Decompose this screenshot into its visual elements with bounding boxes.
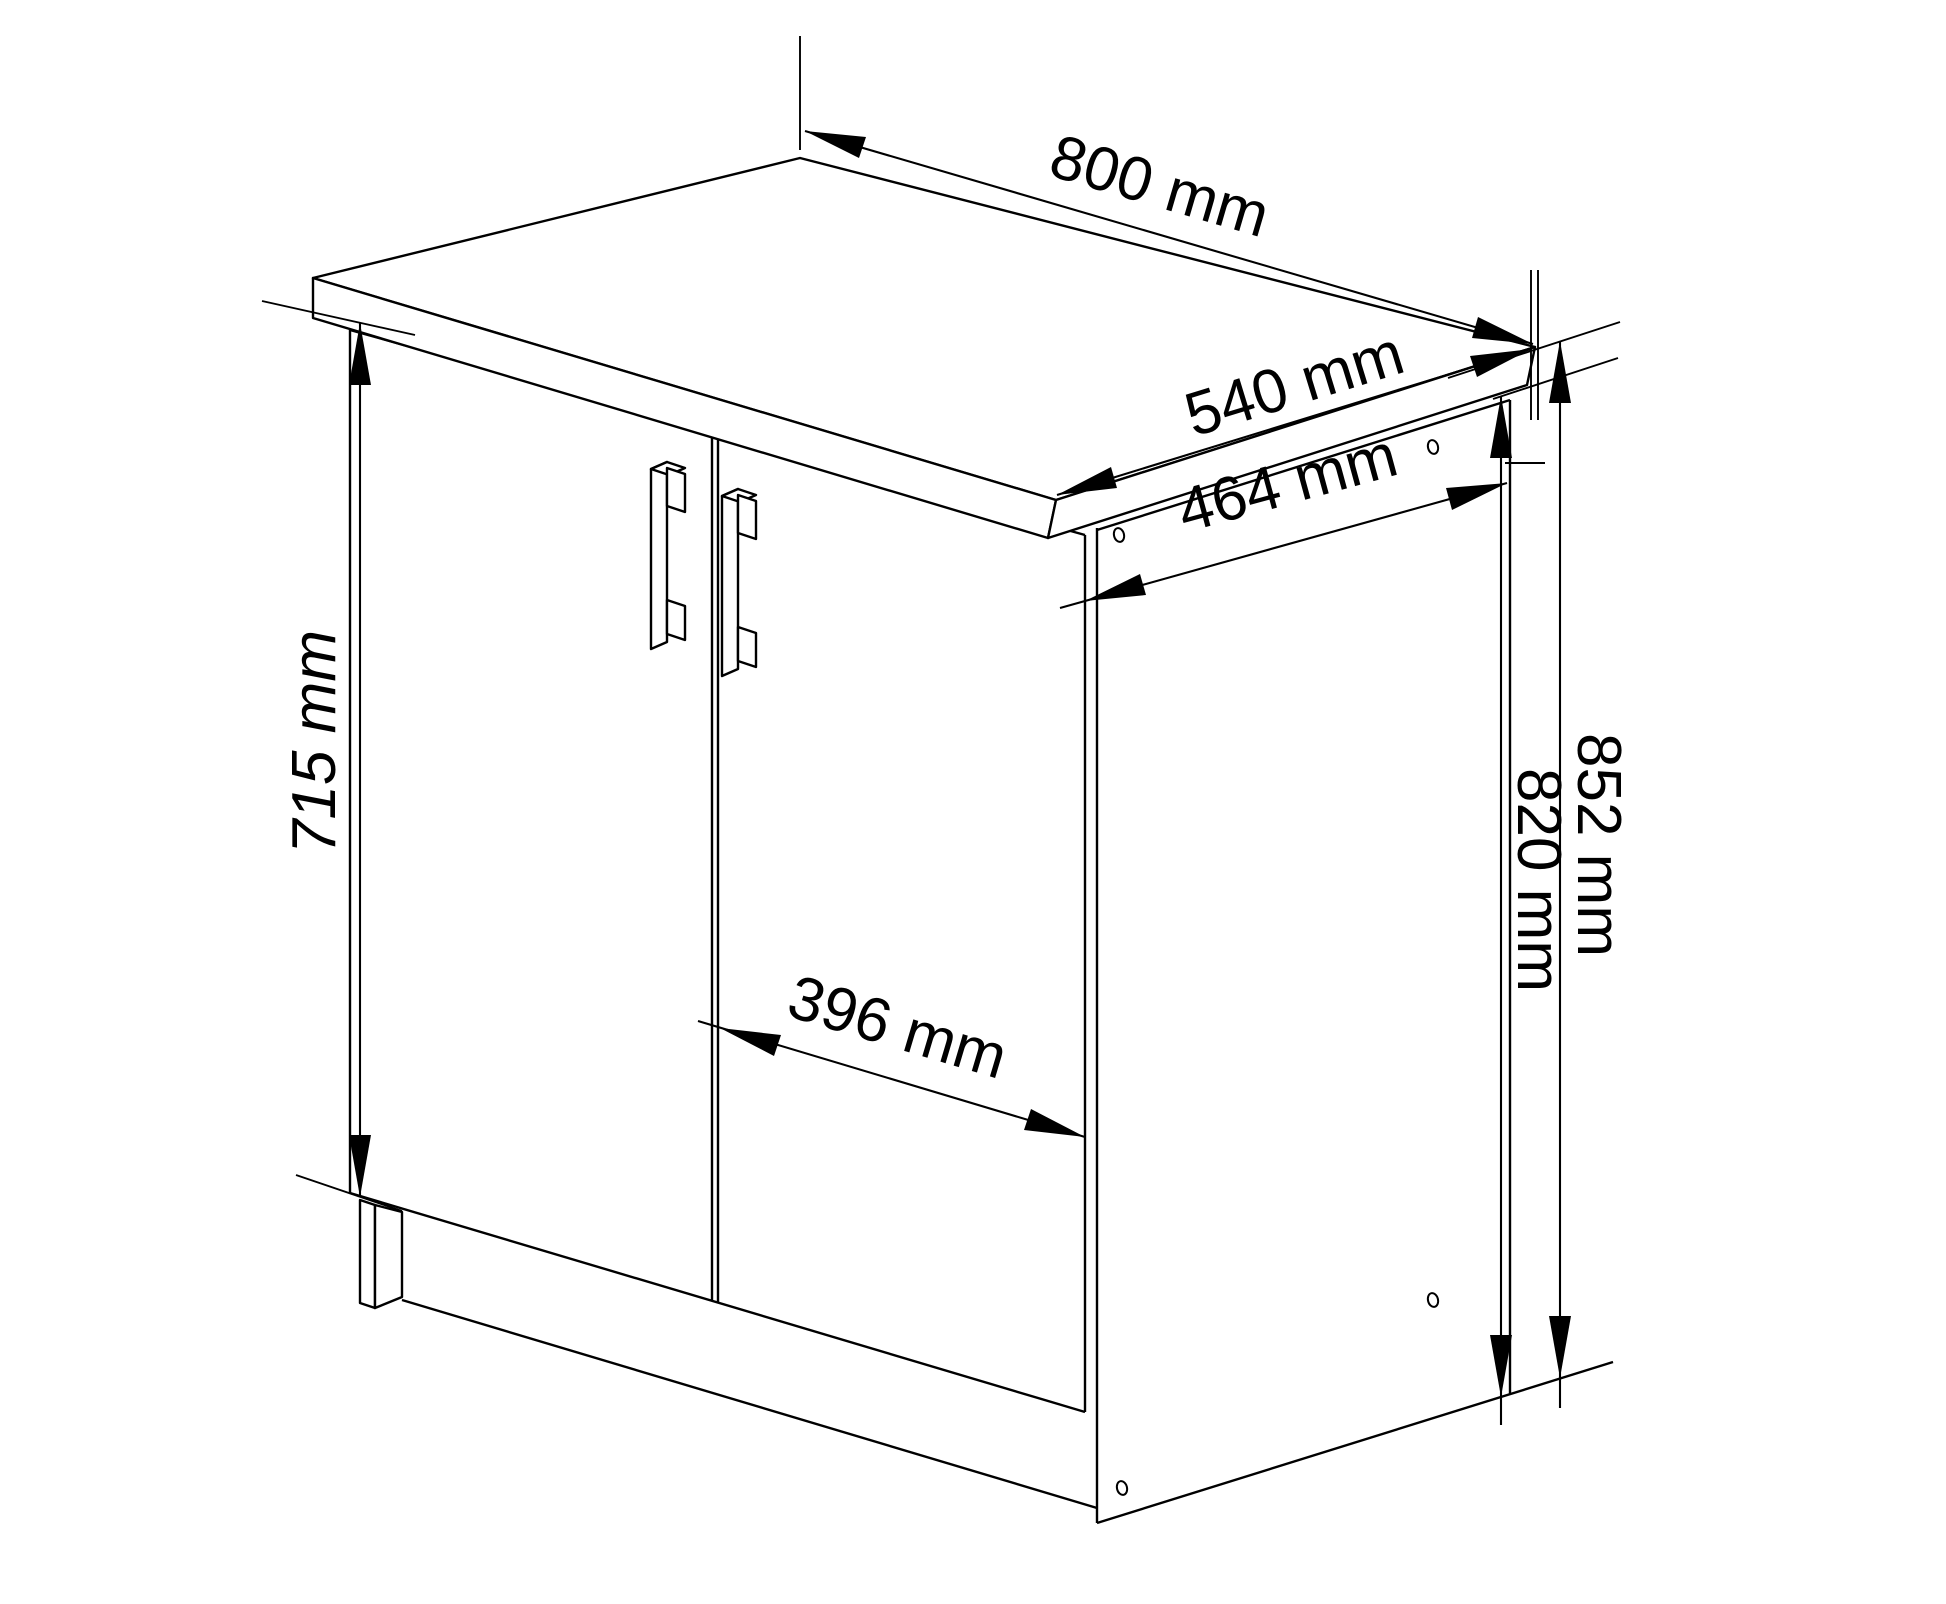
- handle-top-standoff: [738, 495, 756, 539]
- dim-label-396: 396 mm: [780, 962, 1014, 1092]
- side-panel-bottom-edge: [1097, 1362, 1613, 1523]
- shelf-pin-hole: [1112, 527, 1125, 543]
- arrowhead: [1024, 1109, 1085, 1137]
- page-root: 800 mm 540 mm 464 mm 715 mm: [0, 0, 1946, 1604]
- plinth: [402, 1300, 1097, 1508]
- handle-top-standoff: [667, 468, 685, 512]
- dim-label-820: 820 mm: [1504, 768, 1573, 992]
- leg-front-face: [360, 1200, 375, 1308]
- cabinet-dimension-drawing: 800 mm 540 mm 464 mm 715 mm: [0, 0, 1946, 1604]
- shelf-pin-hole: [1426, 1292, 1439, 1308]
- arrowhead: [805, 131, 866, 158]
- arrowhead: [1446, 483, 1507, 510]
- shelf-pin-hole: [1115, 1480, 1128, 1496]
- plinth-bottom-edge: [402, 1300, 1097, 1508]
- arrowhead: [1549, 341, 1571, 403]
- dimension-door-width: 396 mm: [698, 962, 1085, 1137]
- shelf-pin-hole: [1426, 439, 1439, 455]
- leg-side-face: [375, 1205, 402, 1308]
- door-handle-right: [722, 489, 756, 676]
- arrowhead: [720, 1028, 781, 1056]
- arrowhead: [1085, 574, 1146, 601]
- arrowhead: [349, 1135, 371, 1197]
- handle-bottom-standoff: [667, 600, 685, 640]
- handle-bar: [722, 489, 738, 676]
- handle-bottom-standoff: [738, 627, 756, 667]
- dim-label-852: 852 mm: [1564, 733, 1633, 957]
- front-left-leg: [360, 1200, 402, 1308]
- arrowhead: [1549, 1316, 1571, 1378]
- dim-label-715: 715 mm: [280, 630, 349, 854]
- cabinet: [313, 158, 1613, 1523]
- door-handle-left: [651, 462, 685, 649]
- dimension-door-height: 715 mm: [280, 323, 371, 1197]
- handle-bar: [651, 462, 667, 649]
- arrowhead: [1490, 1335, 1512, 1397]
